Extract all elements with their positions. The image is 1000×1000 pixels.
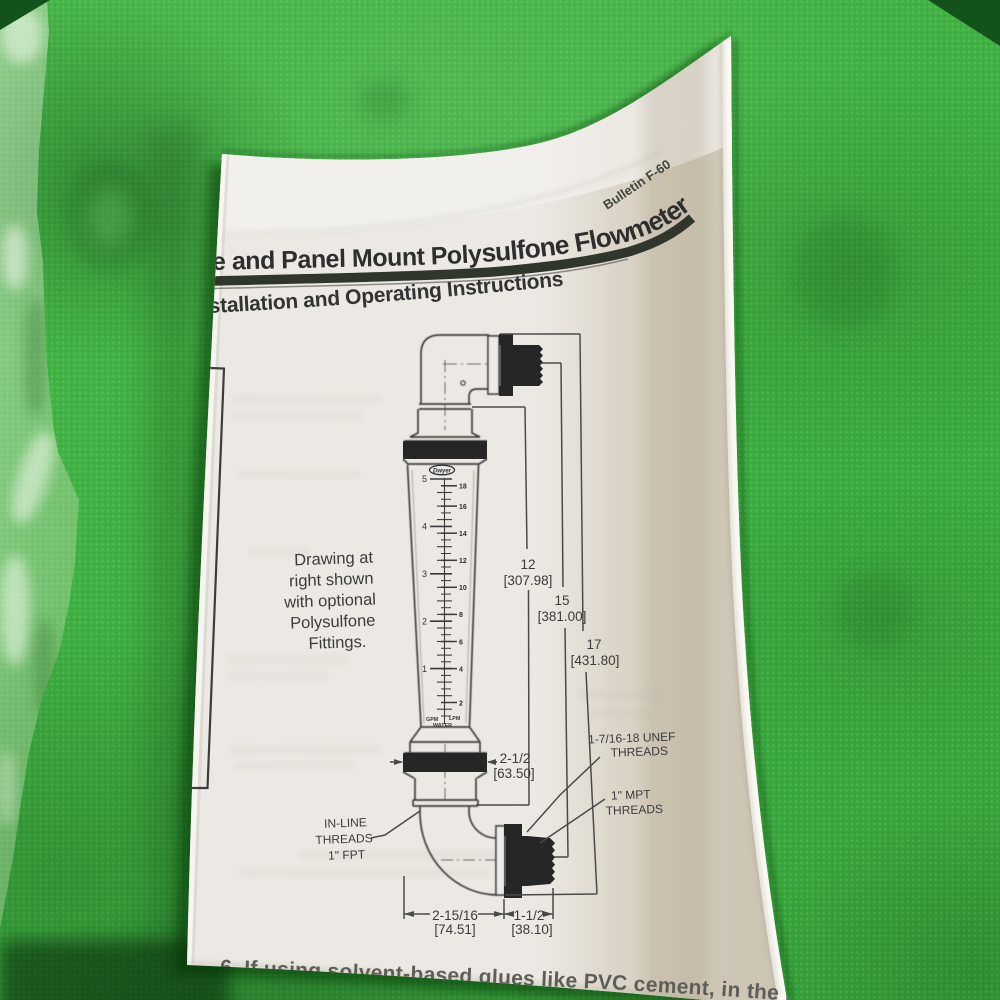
svg-text:2-15/16: 2-15/16 bbox=[432, 908, 478, 923]
svg-text:12: 12 bbox=[459, 558, 467, 565]
svg-text:4: 4 bbox=[422, 522, 427, 532]
svg-text:IN-LINE: IN-LINE bbox=[324, 815, 367, 830]
svg-text:THREADS: THREADS bbox=[315, 831, 373, 847]
svg-text:2: 2 bbox=[459, 700, 463, 707]
svg-text:8: 8 bbox=[459, 612, 463, 619]
svg-text:18: 18 bbox=[459, 484, 467, 491]
svg-text:5: 5 bbox=[422, 474, 427, 484]
svg-text:right shown: right shown bbox=[289, 570, 374, 591]
svg-text:WATER: WATER bbox=[433, 723, 452, 729]
svg-text:2: 2 bbox=[422, 616, 427, 626]
svg-text:10: 10 bbox=[459, 585, 467, 592]
svg-text:[307.98]: [307.98] bbox=[504, 573, 553, 588]
svg-text:15: 15 bbox=[554, 593, 569, 608]
svg-text:with optional: with optional bbox=[283, 591, 376, 612]
svg-text:THREADS: THREADS bbox=[610, 744, 668, 760]
svg-text:2-1/2: 2-1/2 bbox=[500, 751, 531, 766]
svg-text:3: 3 bbox=[422, 569, 427, 579]
svg-text:6: 6 bbox=[459, 639, 463, 646]
svg-text:THREADS: THREADS bbox=[605, 802, 663, 818]
svg-text:4: 4 bbox=[459, 666, 463, 673]
svg-text:[74.51]: [74.51] bbox=[434, 922, 475, 937]
svg-text:[381.00]: [381.00] bbox=[538, 609, 587, 624]
svg-text:Polysulfone: Polysulfone bbox=[290, 612, 376, 633]
svg-text:14: 14 bbox=[459, 531, 467, 538]
svg-text:1: 1 bbox=[422, 664, 427, 674]
svg-text:1" FPT: 1" FPT bbox=[328, 847, 366, 862]
svg-text:[38.10]: [38.10] bbox=[511, 922, 552, 937]
svg-text:12: 12 bbox=[520, 557, 535, 572]
svg-text:LPM: LPM bbox=[449, 716, 461, 722]
svg-text:Drawing at: Drawing at bbox=[294, 549, 374, 570]
svg-text:1" MPT: 1" MPT bbox=[611, 787, 652, 802]
svg-text:[63.50]: [63.50] bbox=[493, 766, 534, 781]
svg-text:Fittings.: Fittings. bbox=[308, 633, 366, 653]
svg-text:1-1/2: 1-1/2 bbox=[514, 908, 545, 923]
svg-text:Dwyer: Dwyer bbox=[433, 469, 452, 475]
svg-text:17: 17 bbox=[586, 637, 601, 652]
svg-text:[431.80]: [431.80] bbox=[571, 653, 620, 668]
svg-text:16: 16 bbox=[459, 504, 467, 511]
